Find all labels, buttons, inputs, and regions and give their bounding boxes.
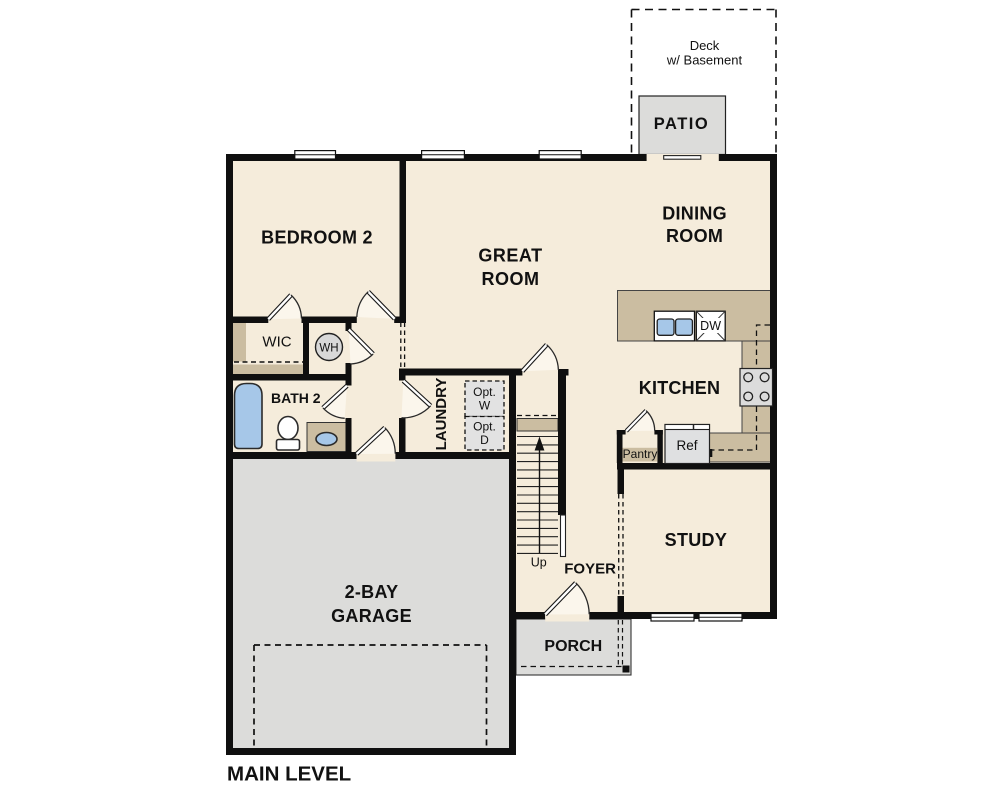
svg-text:KITCHEN: KITCHEN (639, 378, 720, 398)
svg-text:Up: Up (531, 556, 547, 570)
svg-text:w/ Basement: w/ Basement (666, 53, 743, 68)
svg-text:DW: DW (700, 319, 721, 333)
svg-text:ROOM: ROOM (666, 226, 723, 246)
svg-text:GREAT: GREAT (478, 246, 542, 266)
svg-text:LAUNDRY: LAUNDRY (433, 378, 450, 451)
svg-text:Opt.: Opt. (473, 420, 496, 434)
svg-text:Ref: Ref (676, 438, 697, 453)
svg-text:STUDY: STUDY (665, 530, 728, 550)
svg-text:2-BAY: 2-BAY (345, 582, 399, 602)
svg-text:D: D (480, 433, 489, 447)
svg-text:Deck: Deck (690, 38, 720, 53)
svg-text:FOYER: FOYER (564, 561, 616, 578)
svg-text:PORCH: PORCH (544, 638, 602, 655)
svg-text:GARAGE: GARAGE (331, 606, 412, 626)
svg-text:Pantry: Pantry (623, 447, 658, 461)
svg-text:W: W (479, 399, 491, 413)
svg-text:BEDROOM 2: BEDROOM 2 (261, 228, 373, 248)
svg-text:WH: WH (319, 343, 338, 355)
svg-text:BATH 2: BATH 2 (271, 390, 321, 406)
svg-text:PATIO: PATIO (654, 115, 709, 133)
svg-text:ROOM: ROOM (482, 269, 540, 289)
svg-text:MAIN LEVEL: MAIN LEVEL (227, 763, 351, 786)
svg-text:WIC: WIC (262, 334, 291, 351)
svg-text:Opt.: Opt. (473, 385, 496, 399)
svg-text:DINING: DINING (662, 204, 727, 224)
